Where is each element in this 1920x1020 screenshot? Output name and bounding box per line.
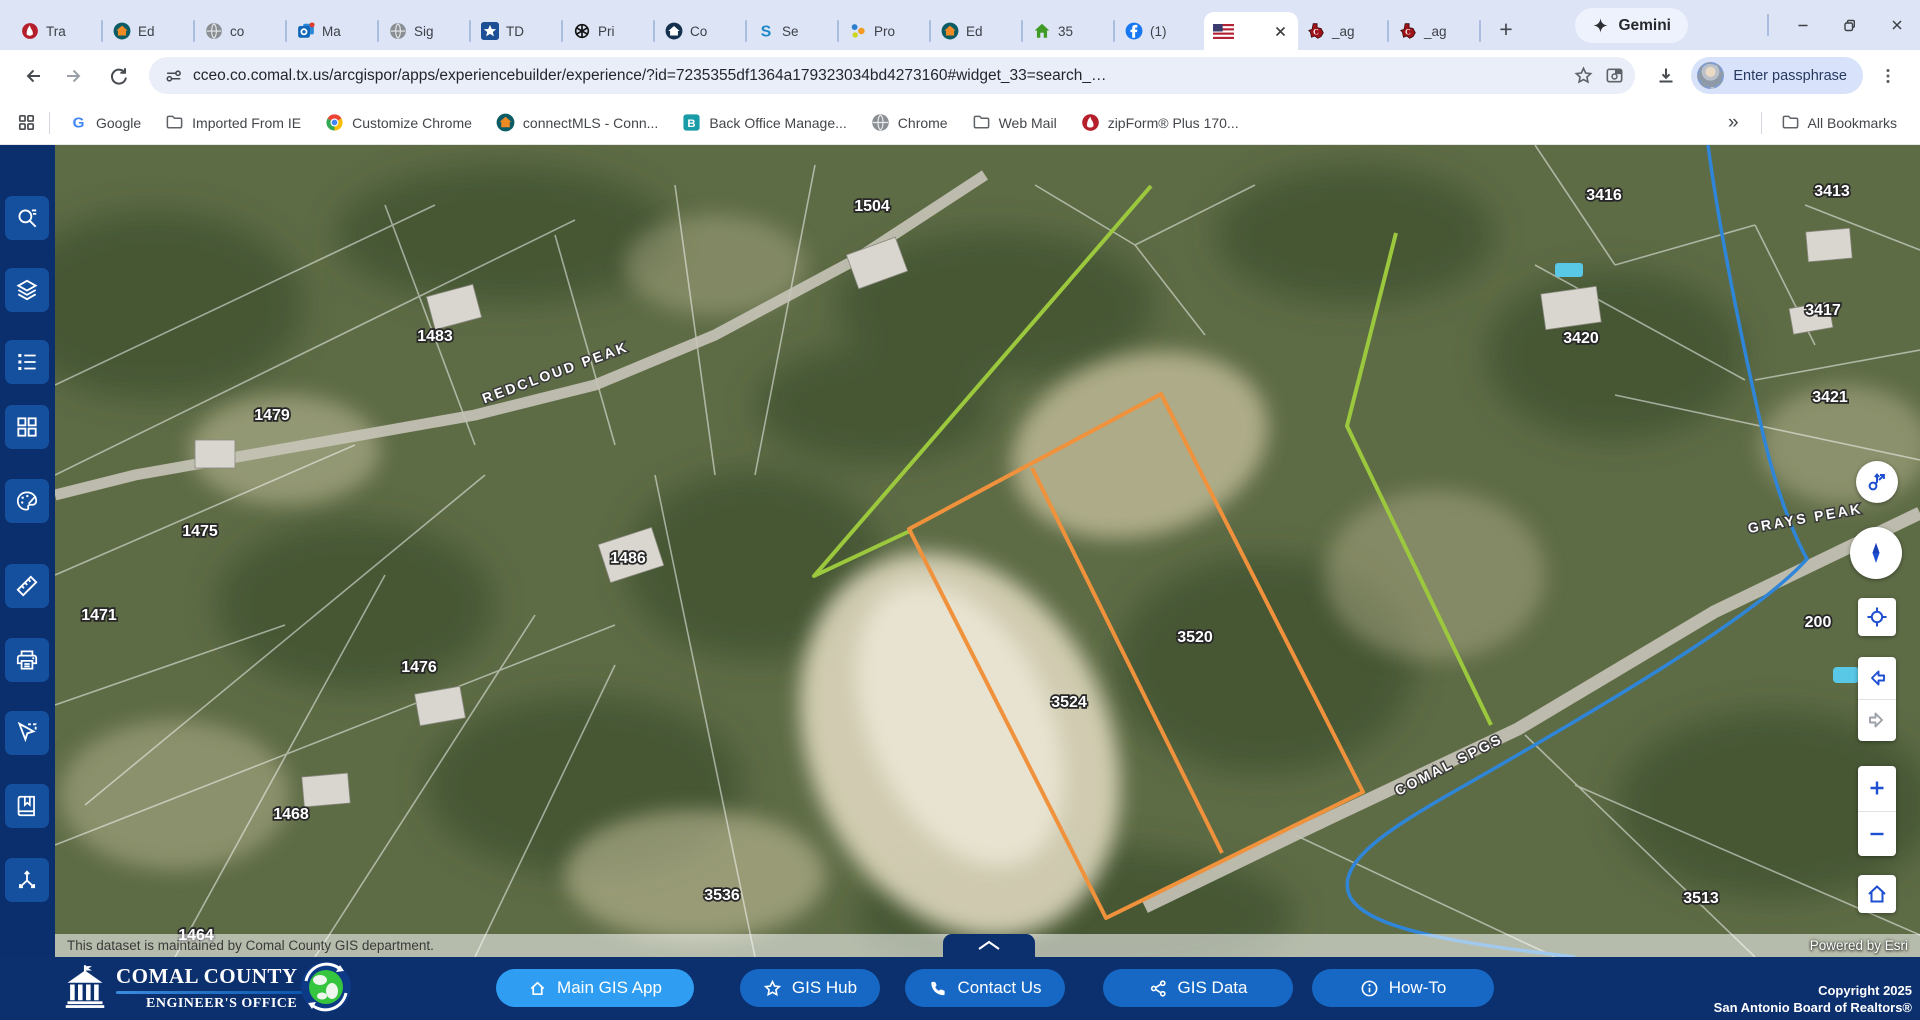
tab[interactable]: Ed <box>104 12 192 50</box>
bookmark-label: Customize Chrome <box>352 115 472 131</box>
profile-avatar <box>1697 62 1724 89</box>
site-settings-icon[interactable] <box>163 66 183 86</box>
tool-sidebar <box>0 145 55 957</box>
dots-favicon <box>849 22 867 40</box>
tab-label: Sig <box>414 24 434 39</box>
gemini-spark-icon <box>1592 17 1609 34</box>
folder-icon <box>1781 113 1800 132</box>
sidebar-tool-draw[interactable] <box>5 479 49 523</box>
bookmarks-overflow-button[interactable]: » <box>1718 112 1749 134</box>
tab-label: Se <box>782 24 799 39</box>
sidebar-tool-bookmarks[interactable] <box>5 784 49 828</box>
map-control-next-extent[interactable] <box>1858 699 1896 742</box>
parcel-label: 200 <box>1805 614 1832 631</box>
tab-label: Ed <box>138 24 155 39</box>
parcel-label: 3520 <box>1177 629 1213 646</box>
tab[interactable]: Pri <box>564 12 652 50</box>
map-control-group <box>1858 657 1896 741</box>
bookmarks-divider <box>49 112 50 134</box>
bookmark-label: Back Office Manage... <box>709 115 846 131</box>
outlook-favicon <box>297 22 315 40</box>
tab[interactable]: (1) <box>1116 12 1204 50</box>
tab-separator <box>837 20 839 42</box>
gis-globe-logo <box>300 961 352 1013</box>
org-rule <box>116 991 306 994</box>
basemaps-icon <box>14 414 40 440</box>
map-canvas[interactable]: 1504341634131483341734201479342114751486… <box>55 145 1920 957</box>
coordinates-icon <box>14 867 40 893</box>
footer-button-label: Contact Us <box>957 978 1041 998</box>
bookmark-item[interactable]: Imported From IE <box>158 113 308 132</box>
facebook-favicon <box>1125 22 1143 40</box>
globe-icon <box>871 113 890 132</box>
globe-favicon <box>205 22 223 40</box>
map-control-locate[interactable] <box>1858 598 1896 636</box>
compass-icon <box>1864 541 1888 565</box>
minimize-button[interactable] <box>1779 0 1826 50</box>
footer-button-label: Main GIS App <box>557 978 662 998</box>
close-window-button[interactable] <box>1873 0 1920 50</box>
tab-separator <box>745 20 747 42</box>
new-tab-button[interactable]: + <box>1490 13 1522 45</box>
parcel-label: 3420 <box>1563 330 1599 347</box>
pan-mode-icon <box>1865 470 1889 494</box>
tab-separator <box>929 20 931 42</box>
parcel-label: 1486 <box>610 550 646 567</box>
select-icon <box>14 720 40 746</box>
tab[interactable]: Ma <box>288 12 376 50</box>
svg-text:C: C <box>1405 27 1411 36</box>
connectmls-favicon <box>941 22 959 40</box>
svg-text:B: B <box>688 118 696 130</box>
tab-separator <box>561 20 563 42</box>
downloads-button[interactable] <box>1648 58 1684 94</box>
tab[interactable]: Co <box>656 12 744 50</box>
bookmark-item[interactable]: Chrome <box>864 113 955 132</box>
tab-label: _ag <box>1424 24 1447 39</box>
folder-icon <box>165 113 184 132</box>
bookmark-label: Imported From IE <box>192 115 301 131</box>
tab-separator <box>193 20 195 42</box>
close-tab-icon[interactable] <box>1271 22 1289 40</box>
star-icon <box>763 979 782 998</box>
bookmark-star-icon[interactable] <box>1573 65 1594 86</box>
bookmark-item[interactable]: connectMLS - Conn... <box>489 113 665 132</box>
tab-label: _ag <box>1332 24 1355 39</box>
googleg-icon: G <box>69 113 88 132</box>
bookmark-item[interactable]: Web Mail <box>965 113 1064 132</box>
svg-text:G: G <box>73 115 85 132</box>
info-icon <box>1360 979 1379 998</box>
tab[interactable]: Pro <box>840 12 928 50</box>
parcel-label: 3413 <box>1814 183 1850 200</box>
tab[interactable]: SSe <box>748 12 836 50</box>
bookmark-item[interactable]: zipForm® Plus 170... <box>1074 113 1246 132</box>
omnibox[interactable]: cceo.co.comal.tx.us/arcgispor/apps/exper… <box>149 57 1635 94</box>
chevron-up-icon <box>974 939 1004 952</box>
homenavy-favicon <box>665 22 683 40</box>
back-button[interactable] <box>14 58 50 94</box>
org-subtitle: ENGINEER'S OFFICE <box>116 996 306 1012</box>
parcel-label: 3416 <box>1586 187 1622 204</box>
lonewolf-icon <box>1081 113 1100 132</box>
map-control-previous-extent[interactable] <box>1858 657 1896 699</box>
tab-separator <box>377 20 379 42</box>
tab-label: TD <box>506 24 524 39</box>
bookmark-item[interactable]: Customize Chrome <box>318 113 479 132</box>
tab[interactable]: TD <box>472 12 560 50</box>
footer-button-how-to[interactable]: How-To <box>1312 969 1494 1007</box>
tab-label: co <box>230 24 244 39</box>
powered-by-esri: Powered by Esri <box>1810 938 1908 953</box>
bookmark-label: zipForm® Plus 170... <box>1108 115 1239 131</box>
agency-logo: COMAL COUNTY ENGINEER'S OFFICE <box>64 964 306 1012</box>
parcel-label: 3524 <box>1051 694 1087 711</box>
footer-button-label: How-To <box>1389 978 1447 998</box>
map-control-zoom-in[interactable] <box>1858 766 1896 811</box>
svg-text:S: S <box>761 24 772 40</box>
print-icon <box>14 647 40 673</box>
tab[interactable]: co <box>196 12 284 50</box>
bookmark-label: connectMLS - Conn... <box>523 115 658 131</box>
all-bookmarks-button[interactable]: All Bookmarks <box>1774 113 1904 132</box>
tab-separator <box>1479 20 1481 42</box>
connectmls-favicon <box>113 22 131 40</box>
sidebar-tool-coordinates[interactable] <box>5 858 49 902</box>
locate-icon <box>1865 605 1889 629</box>
apps-grid-icon[interactable] <box>16 112 37 133</box>
bookmarks-icon <box>14 793 40 819</box>
svg-text:C: C <box>1313 27 1319 36</box>
active-tab[interactable] <box>1204 12 1298 50</box>
footer-collapse-button[interactable] <box>943 934 1035 957</box>
skyslope-favicon: S <box>757 22 775 40</box>
housegreen-favicon <box>1033 22 1051 40</box>
tab[interactable]: C_ag <box>1298 12 1386 50</box>
profile-label: Enter passphrase <box>1733 68 1847 84</box>
share-icon <box>1149 979 1168 998</box>
previous-extent-icon <box>1865 666 1889 690</box>
window-controls <box>1767 0 1920 50</box>
tab-separator <box>285 20 287 42</box>
bookmark-item[interactable]: BBack Office Manage... <box>675 113 853 132</box>
phone-icon <box>928 979 947 998</box>
footer-button-gis-data[interactable]: GIS Data <box>1103 969 1293 1007</box>
map-control-zoom-out[interactable] <box>1858 811 1896 857</box>
map-control-group <box>1858 766 1896 856</box>
next-extent-icon <box>1865 708 1889 732</box>
window-controls-divider <box>1767 14 1769 36</box>
parcel-label: 3417 <box>1805 302 1841 319</box>
bookmark-label: Chrome <box>898 115 948 131</box>
bookmarks-list: GGoogleImported From IECustomize Chromec… <box>62 113 1246 132</box>
restore-button[interactable] <box>1826 0 1873 50</box>
parcel-label: 3513 <box>1683 890 1719 907</box>
gemini-label: Gemini <box>1618 17 1671 35</box>
tab-label: 35 <box>1058 24 1073 39</box>
org-title: COMAL COUNTY <box>116 964 306 989</box>
url-text[interactable]: cceo.co.comal.tx.us/arcgispor/apps/exper… <box>193 67 1563 85</box>
parcel-label: 1476 <box>401 659 437 676</box>
bookmark-label: Google <box>96 115 141 131</box>
tab-separator <box>1021 20 1023 42</box>
tab-label: (1) <box>1150 24 1167 39</box>
forward-button[interactable] <box>57 58 93 94</box>
sidebar-tool-select[interactable] <box>5 711 49 755</box>
footer-button-label: GIS Data <box>1178 978 1248 998</box>
profile-button[interactable]: Enter passphrase <box>1691 57 1863 94</box>
usflag-favicon <box>1213 24 1235 39</box>
texas-favicon: C <box>1307 22 1325 40</box>
tab-label: Ma <box>322 24 341 39</box>
parcel-label: 1475 <box>182 523 218 540</box>
home-icon <box>528 979 547 998</box>
map-control-compass[interactable] <box>1850 527 1902 579</box>
tab-separator <box>653 20 655 42</box>
tabs-container: TraEdcoMaSigTDPriCoSSeProEd35(1)C_agC_ag <box>12 0 1482 50</box>
openai-favicon <box>573 22 591 40</box>
sidebar-tool-layers[interactable] <box>5 268 49 312</box>
parcel-label: 3421 <box>1812 389 1848 406</box>
tab-separator <box>1113 20 1115 42</box>
copyright-text: Copyright 2025 San Antonio Board of Real… <box>1714 983 1912 1017</box>
parcel-label: 1504 <box>854 198 890 215</box>
tab[interactable]: Sig <box>380 12 468 50</box>
tab-label: Pro <box>874 24 895 39</box>
texas-favicon: C <box>1399 22 1417 40</box>
courthouse-icon <box>64 964 106 1012</box>
reload-button[interactable] <box>100 58 136 94</box>
copyright-line1: Copyright 2025 <box>1714 983 1912 1000</box>
parcel-label: 1471 <box>81 607 117 624</box>
bookmark-label: Web Mail <box>999 115 1057 131</box>
tab-separator <box>1387 20 1389 42</box>
copyright-line2: San Antonio Board of Realtors® <box>1714 1000 1912 1017</box>
globe-favicon <box>389 22 407 40</box>
home-icon <box>1865 882 1889 906</box>
folder-icon <box>972 113 991 132</box>
starblue-favicon <box>481 22 499 40</box>
footer-button-gis-hub[interactable]: GIS Hub <box>740 969 880 1007</box>
tab-capture-icon[interactable] <box>1604 65 1625 86</box>
layers-icon <box>14 277 40 303</box>
measure-icon <box>14 573 40 599</box>
tab-label: Co <box>690 24 707 39</box>
search-icon <box>14 205 40 231</box>
footer-button-label: GIS Hub <box>792 978 857 998</box>
tab-separator <box>101 20 103 42</box>
footer-button-contact-us[interactable]: Contact Us <box>905 969 1065 1007</box>
zoom-out-icon <box>1865 822 1889 846</box>
tab[interactable]: Ed <box>932 12 1020 50</box>
sidebar-tool-basemaps[interactable] <box>5 405 49 449</box>
all-bookmarks-label: All Bookmarks <box>1808 115 1897 131</box>
tab-separator <box>469 20 471 42</box>
tab-label: Tra <box>46 24 66 39</box>
site-footer: COMAL COUNTY ENGINEER'S OFFICE Main GIS … <box>0 957 1920 1020</box>
legend-icon <box>14 349 40 375</box>
parcel-label: 3536 <box>704 887 740 904</box>
parcel-label: 1483 <box>417 328 453 345</box>
connectmls-icon <box>496 113 515 132</box>
menu-kebab-icon[interactable] <box>1870 58 1906 94</box>
bookmark-item[interactable]: GGoogle <box>62 113 148 132</box>
draw-icon <box>14 488 40 514</box>
all-bookmarks-divider <box>1761 112 1762 134</box>
map-control-home[interactable] <box>1858 875 1896 913</box>
sidebar-tool-legend[interactable] <box>5 340 49 384</box>
gemini-button[interactable]: Gemini <box>1575 8 1688 43</box>
tab[interactable]: 35 <box>1024 12 1112 50</box>
footer-button-main-gis-app[interactable]: Main GIS App <box>496 969 694 1007</box>
map-control-pan-mode[interactable] <box>1856 461 1898 503</box>
parcel-label: 1468 <box>273 806 309 823</box>
tab[interactable]: Tra <box>12 12 100 50</box>
tab-label: Pri <box>598 24 615 39</box>
sidebar-tool-measure[interactable] <box>5 564 49 608</box>
sidebar-tool-search[interactable] <box>5 196 49 240</box>
sidebar-tool-print[interactable] <box>5 638 49 682</box>
attribution-text: This dataset is maintained by Comal Coun… <box>67 938 434 953</box>
browser-toolbar: cceo.co.comal.tx.us/arcgispor/apps/exper… <box>0 50 1920 101</box>
tab-label: Ed <box>966 24 983 39</box>
zoom-in-icon <box>1865 776 1889 800</box>
bookmarks-bar: GGoogleImported From IECustomize Chromec… <box>0 101 1920 145</box>
tab[interactable]: C_ag <box>1390 12 1478 50</box>
bteal-icon: B <box>682 113 701 132</box>
parcel-label: 1479 <box>254 407 290 424</box>
chrome-icon <box>325 113 344 132</box>
lonewolf-favicon <box>21 22 39 40</box>
